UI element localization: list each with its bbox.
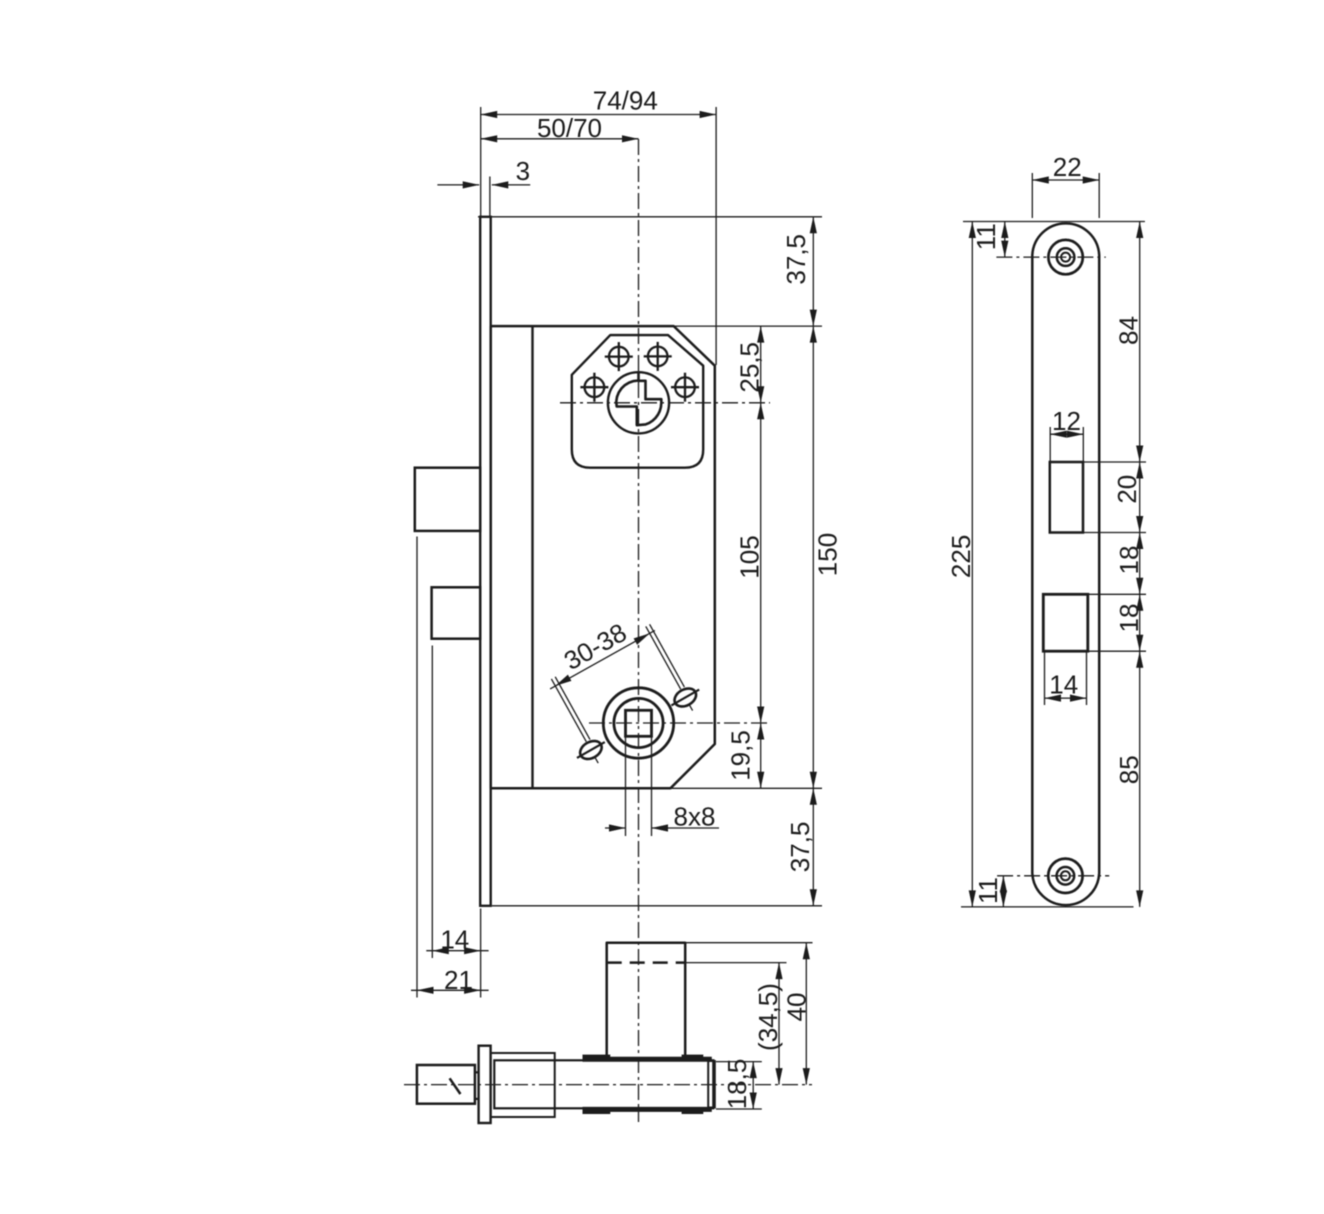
svg-text:85: 85: [1114, 755, 1144, 784]
svg-text:18: 18: [1114, 604, 1144, 633]
svg-text:8x8: 8x8: [674, 802, 716, 832]
svg-text:(34,5): (34,5): [753, 983, 783, 1051]
svg-text:84: 84: [1114, 316, 1144, 345]
svg-text:25,5: 25,5: [735, 342, 765, 393]
svg-text:37,5: 37,5: [785, 822, 815, 873]
svg-text:14: 14: [1049, 670, 1078, 700]
svg-text:18,5: 18,5: [722, 1059, 752, 1110]
svg-text:50/70: 50/70: [537, 113, 602, 143]
svg-text:18: 18: [1114, 546, 1144, 575]
svg-text:3: 3: [516, 156, 530, 186]
svg-text:12: 12: [1052, 406, 1081, 436]
svg-text:105: 105: [735, 535, 765, 578]
svg-text:74/94: 74/94: [593, 86, 658, 116]
svg-text:14: 14: [440, 924, 469, 954]
svg-text:21: 21: [444, 965, 473, 995]
svg-text:19,5: 19,5: [726, 730, 756, 781]
svg-text:150: 150: [813, 533, 843, 576]
svg-text:40: 40: [781, 993, 811, 1022]
svg-text:11: 11: [973, 877, 1003, 904]
svg-text:225: 225: [946, 535, 976, 578]
svg-text:37,5: 37,5: [781, 234, 811, 285]
svg-text:20: 20: [1112, 475, 1142, 504]
svg-text:22: 22: [1053, 152, 1082, 182]
